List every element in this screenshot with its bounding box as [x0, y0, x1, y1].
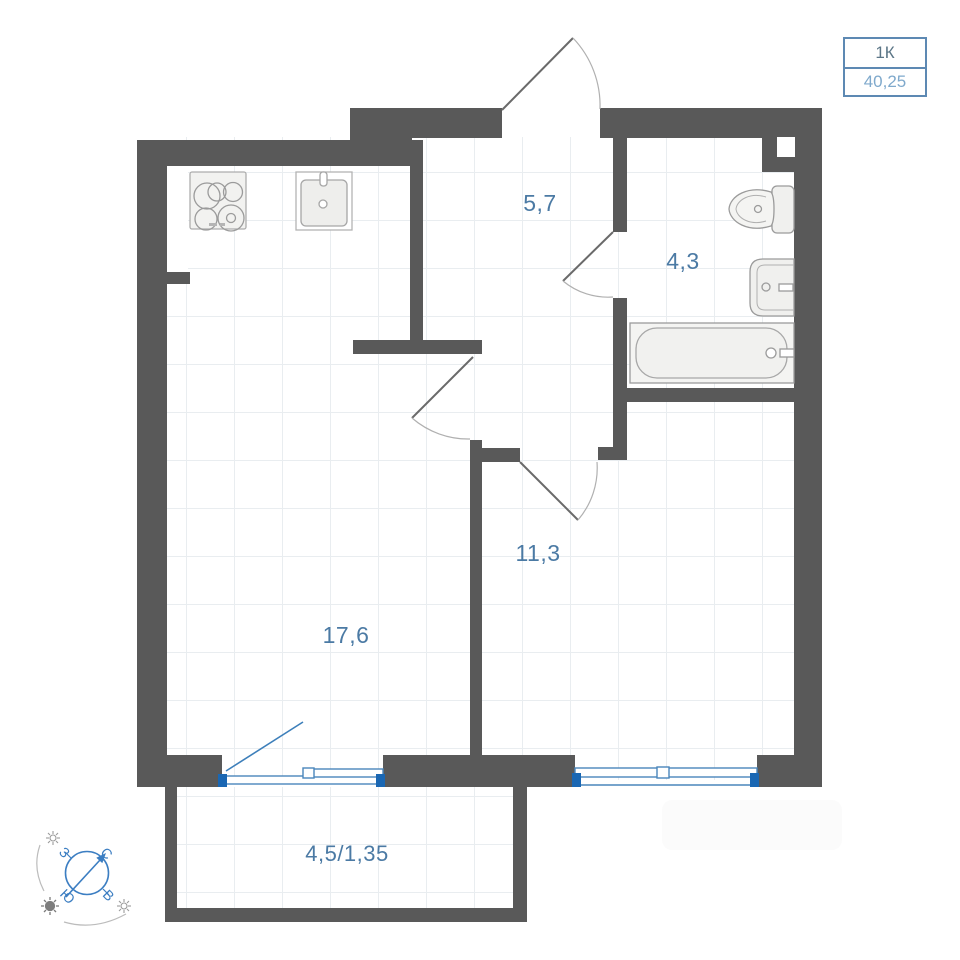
area-label-balcony: 4,5/1,35 — [267, 841, 427, 867]
wall-segment — [163, 272, 190, 284]
apartment-type-badge: 1К — [843, 37, 927, 67]
wall-segment — [353, 340, 482, 354]
wall-segment — [613, 298, 627, 460]
balcony-wall — [165, 908, 527, 922]
wall-segment — [410, 140, 423, 342]
balcony-wall — [165, 787, 177, 922]
apartment-area-badge: 40,25 — [843, 67, 927, 97]
wall-segment — [600, 108, 822, 138]
wall-segment — [470, 448, 520, 462]
vent-shaft — [167, 166, 188, 272]
sun-icon — [41, 897, 59, 915]
wall-segment — [598, 447, 627, 460]
wall-segment — [794, 137, 822, 787]
compass-east-label: В — [100, 886, 118, 904]
compass-west-label: З — [56, 844, 73, 861]
wall-segment — [613, 137, 627, 232]
wall-segment — [470, 440, 482, 757]
wall-segment — [757, 755, 822, 787]
compass-north-label: С — [97, 844, 115, 862]
balcony-wall — [513, 787, 527, 908]
area-label-living-kitchen: 17,6 — [306, 622, 386, 649]
wall-segment — [137, 140, 167, 787]
watermark — [662, 800, 842, 850]
vent-shaft — [777, 137, 795, 157]
sun-icon — [46, 831, 60, 845]
compass-south-label: Ю — [57, 886, 78, 907]
floorplan: 5,7 4,3 11,3 17,6 4,5/1,35 1К 40,25 — [0, 0, 960, 960]
wall-segment — [383, 755, 575, 787]
entrance-door — [502, 38, 600, 110]
wall-segment — [137, 755, 222, 787]
area-label-bedroom: 11,3 — [498, 540, 578, 567]
area-label-bathroom: 4,3 — [643, 248, 723, 275]
area-label-hallway: 5,7 — [500, 190, 580, 217]
wall-segment — [613, 388, 822, 402]
wall-segment — [350, 108, 502, 138]
compass-rose: С В Ю З — [30, 810, 160, 940]
sun-icon — [117, 899, 131, 913]
legend: 1К 40,25 — [843, 37, 927, 97]
